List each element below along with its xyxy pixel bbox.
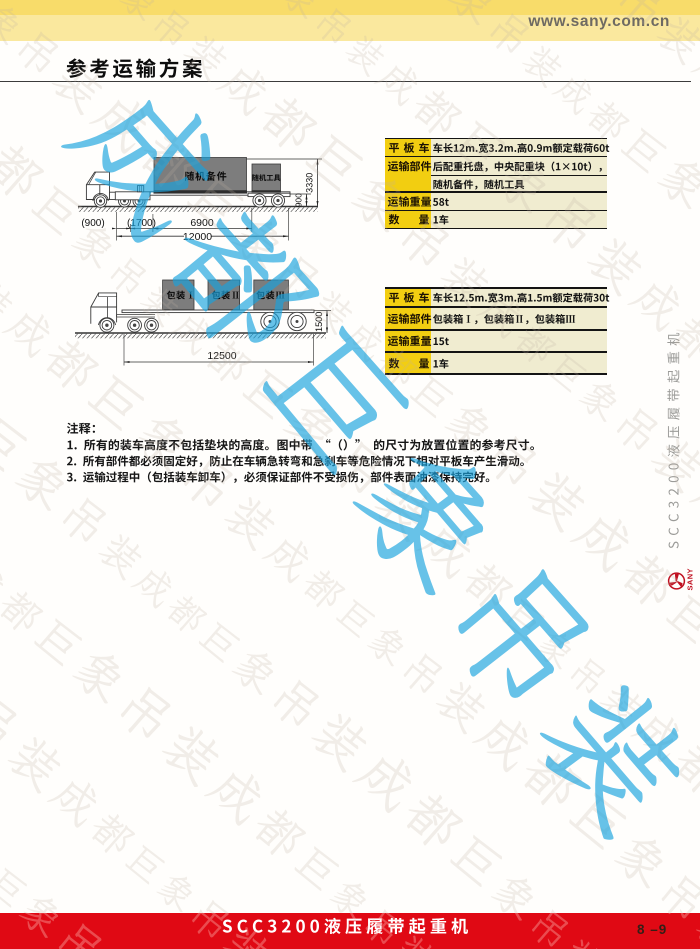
svg-text:SANY: SANY <box>686 568 695 590</box>
svg-text:8 –9: 8 –9 <box>637 922 667 937</box>
